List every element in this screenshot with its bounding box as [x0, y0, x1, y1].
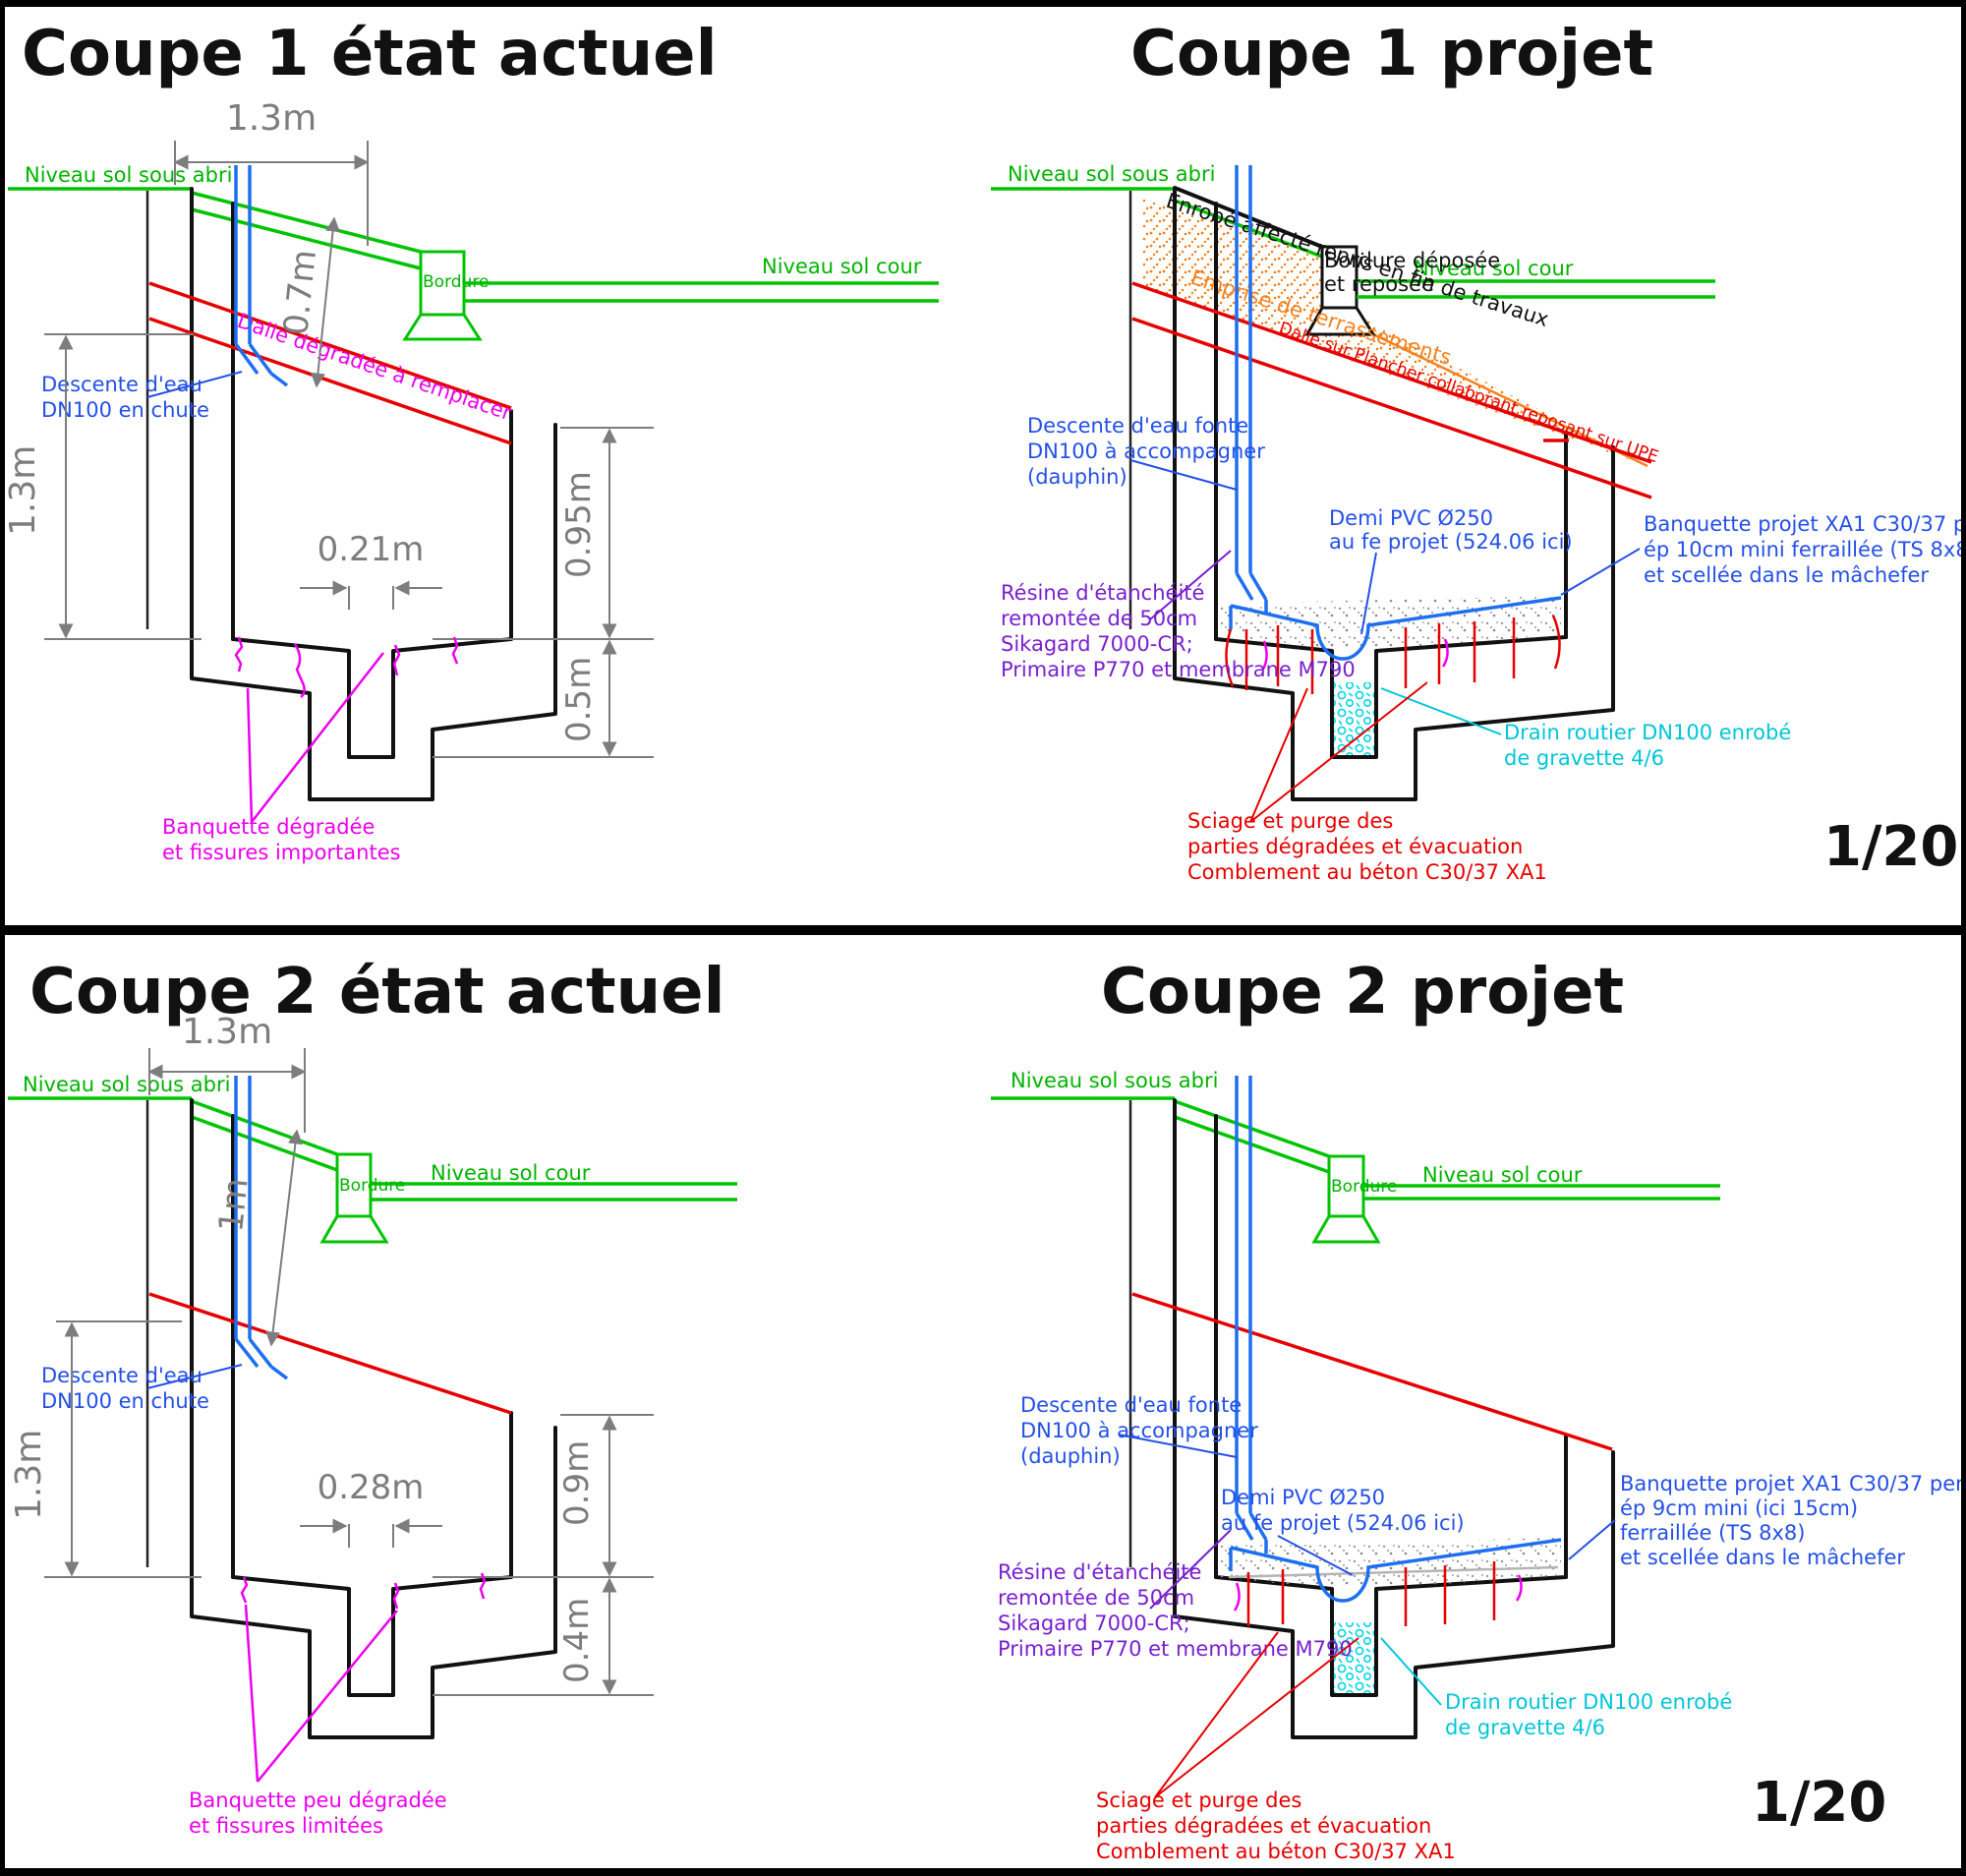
label-sciage-3: Comblement au béton C30/37 XA1	[1187, 860, 1547, 884]
dimension-gutter: 0.21m	[300, 530, 442, 610]
label-resine-2: remontée de 50cm	[998, 1586, 1194, 1610]
dim-right-upper-value: 0.9m	[557, 1440, 597, 1526]
label-banquette-3: ferraillée (TS 8x8)	[1620, 1521, 1805, 1545]
label-descente-3: (dauphin)	[1020, 1444, 1121, 1468]
label-resine-1: Résine d'étanchéité	[1001, 581, 1204, 605]
new-slab: Dalle sur Plancher collaborant reposant …	[1132, 283, 1661, 498]
label-sciage-3: Comblement au béton C30/37 XA1	[1096, 1840, 1456, 1863]
label-niveau-sol-cour: Niveau sol cour	[1422, 1163, 1583, 1187]
drain-note	[1381, 1638, 1441, 1705]
bench-note	[1569, 1520, 1615, 1559]
label-demi-pvc-2: au fe projet (524.06 ici)	[1329, 530, 1573, 554]
label-resine-3: Sikagard 7000-CR;	[998, 1612, 1190, 1635]
label-sciage-2: parties dégradées et évacuation	[1187, 835, 1523, 858]
structure-outline	[147, 189, 555, 799]
label-descente-2: DN100 à accompagner	[1027, 440, 1265, 463]
dim-right-lower-value: 0.4m	[557, 1598, 597, 1683]
label-sciage-1: Sciage et purge des	[1187, 809, 1393, 833]
label-niveau-sol-abri: Niveau sol sous abri	[23, 1073, 230, 1096]
label-banquette-3: et scellée dans le mâchefer	[1644, 563, 1929, 587]
label-dalle-plancher: Dalle sur Plancher collaborant reposant …	[1276, 319, 1660, 467]
cracks	[236, 637, 457, 822]
level-lines	[991, 1098, 1720, 1242]
divider-horizontal	[0, 925, 1966, 935]
dimension-roof: 1m	[211, 1131, 297, 1345]
label-resine-4: Primaire P770 et membrane M790	[998, 1637, 1353, 1661]
label-resine-3: Sikagard 7000-CR;	[1001, 632, 1193, 656]
label-drain-1: Drain routier DN100 enrobé	[1445, 1690, 1732, 1714]
scale-label: 1/20	[1752, 1771, 1886, 1835]
dim-top-value: 1.3m	[226, 98, 317, 139]
label-sciage-2: parties dégradées et évacuation	[1096, 1814, 1431, 1838]
label-banquette-2: et fissures importantes	[162, 841, 401, 864]
label-banquette-2: et fissures limitées	[189, 1814, 383, 1838]
label-niveau-sol-cour: Niveau sol cour	[762, 255, 922, 278]
level-lines	[8, 1098, 737, 1242]
label-descente-2: DN100 à accompagner	[1020, 1419, 1258, 1442]
dim-gutter-value: 0.28m	[318, 1468, 425, 1507]
label-resine-2: remontée de 50cm	[1001, 607, 1197, 630]
downpipe	[147, 1076, 287, 1388]
label-demi-pvc-1: Demi PVC Ø250	[1329, 506, 1493, 530]
label-banquette-1: Banquette peu dégradée	[189, 1788, 447, 1812]
label-resine-1: Résine d'étanchéité	[998, 1560, 1201, 1584]
label-descente-1: Descente d'eau	[41, 1364, 202, 1387]
label-niveau-sol-abri: Niveau sol sous abri	[1008, 162, 1215, 186]
label-demi-pvc-2: au fe projet (524.06 ici)	[1221, 1511, 1465, 1535]
label-banquette-2: ép 10cm mini ferraillée (TS 8x8)	[1644, 538, 1966, 561]
panel-coupe1-etat-actuel: Coupe 1 état actuel Niveau sol sous abri…	[0, 0, 983, 930]
border-left	[0, 0, 5, 1876]
dim-left-value: 1.3m	[9, 1430, 49, 1520]
scale-label: 1/20	[1823, 815, 1958, 879]
dim-roof-value: 0.7m	[276, 248, 324, 337]
dimension-right-lower: 0.5m	[433, 641, 654, 757]
label-drain-2: de gravette 4/6	[1445, 1716, 1605, 1739]
dim-gutter-value: 0.21m	[318, 530, 425, 569]
dim-top-value: 1.3m	[182, 1012, 272, 1052]
label-banquette-1: Banquette projet XA1 C30/37 pente 5%	[1620, 1472, 1966, 1495]
label-niveau-sol-cour: Niveau sol cour	[431, 1161, 591, 1185]
panel-coupe2-projet: Coupe 2 projet Niveau sol sous abri Bord…	[983, 938, 1966, 1876]
dimension-right-lower: 0.4m	[433, 1579, 654, 1695]
panel-title: Coupe 1 état actuel	[22, 18, 718, 90]
label-descente-3: (dauphin)	[1027, 465, 1128, 489]
panel-title: Coupe 2 projet	[1101, 956, 1624, 1028]
dim-roof-value: 1m	[211, 1176, 257, 1234]
drawing-sheet: Coupe 1 état actuel Niveau sol sous abri…	[0, 0, 1966, 1876]
label-banquette-4: et scellée dans le mâchefer	[1620, 1546, 1905, 1569]
dim-right-lower-value: 0.5m	[559, 657, 599, 742]
label-descente-2: DN100 en chute	[41, 1389, 209, 1413]
dim-right-upper-value: 0.95m	[559, 471, 599, 578]
dimension-left: 1.3m	[9, 1321, 202, 1577]
label-descente-1: Descente d'eau fonte	[1020, 1393, 1242, 1417]
label-resine-4: Primaire P770 et membrane M790	[1001, 658, 1356, 681]
label-banquette-2: ép 9cm mini (ici 15cm)	[1620, 1496, 1858, 1520]
dimension-right-upper: 0.95m	[433, 428, 654, 639]
label-drain-1: Drain routier DN100 enrobé	[1504, 721, 1791, 744]
label-banquette-1: Banquette dégradée	[162, 815, 375, 839]
bench-note	[1561, 549, 1640, 595]
cracks	[242, 1573, 485, 1782]
label-bordure: Bordure	[339, 1176, 405, 1196]
dim-left-value: 1.3m	[3, 445, 43, 536]
panel-coupe2-etat-actuel: Coupe 2 état actuel Niveau sol sous abri…	[0, 938, 983, 1876]
label-demi-pvc-1: Demi PVC Ø250	[1221, 1486, 1385, 1509]
label-sciage-1: Sciage et purge des	[1096, 1788, 1301, 1812]
label-niveau-sol-abri: Niveau sol sous abri	[1011, 1069, 1218, 1092]
panel-coupe1-projet: Coupe 1 projet Niveau sol sous abri Nive…	[983, 0, 1966, 930]
dimension-right-upper: 0.9m	[433, 1415, 654, 1577]
label-bordure: Bordure	[1331, 1177, 1397, 1197]
label-banquette-1: Banquette projet XA1 C30/37 pente 5%	[1644, 512, 1966, 536]
panel-title: Coupe 2 état actuel	[29, 956, 725, 1028]
label-descente-1: Descente d'eau fonte	[1027, 414, 1248, 438]
label-drain-2: de gravette 4/6	[1504, 746, 1664, 770]
border-bottom	[0, 1868, 1966, 1876]
new-bench	[1219, 1538, 1561, 1693]
dimension-gutter: 0.28m	[300, 1468, 442, 1548]
label-niveau-sol-abri: Niveau sol sous abri	[25, 163, 232, 187]
label-bordure: Bordure	[423, 272, 489, 292]
border-right	[1961, 0, 1966, 1876]
panel-title: Coupe 1 projet	[1130, 18, 1653, 90]
border-top	[0, 0, 1966, 7]
